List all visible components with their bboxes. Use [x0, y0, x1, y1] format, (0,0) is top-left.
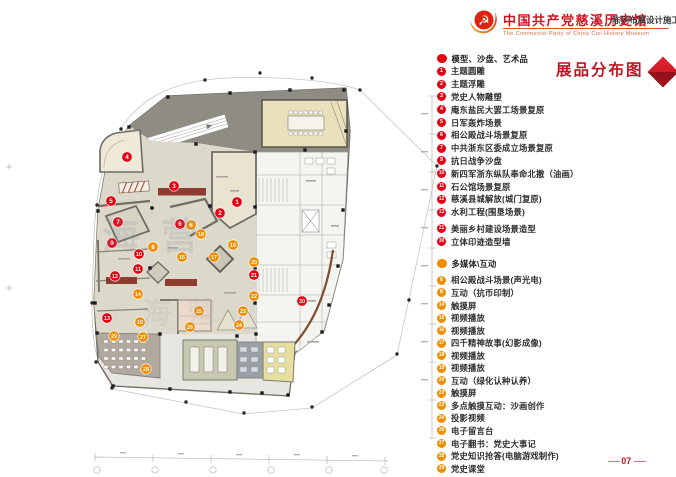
legend-item-label: 视频播放 — [451, 350, 485, 362]
legend-item-27: 27电子翻书：党史大事记 — [437, 437, 669, 450]
legend-item-17: 17四千精神故事(幻影成像) — [437, 337, 669, 350]
svg-text:10: 10 — [136, 252, 142, 258]
legend-item-number: 22 — [437, 389, 446, 398]
svg-text:7: 7 — [116, 219, 120, 226]
legend-item-number: 4 — [437, 105, 446, 114]
legend-item-3: 3党史人物雕塑 — [437, 91, 669, 104]
legend-item-number: 27 — [437, 439, 446, 448]
legend-item-label: 相公殿战斗场景复原 — [451, 129, 527, 141]
plan-marker-4-red: 4 — [122, 152, 132, 162]
legend-item-number: 20 — [437, 376, 446, 385]
legend-item-number: 15 — [437, 314, 446, 323]
svg-text:2: 2 — [218, 210, 222, 217]
legend-item-number: 21 — [437, 224, 446, 233]
legend-section-label: 多媒体\互动 — [452, 258, 497, 270]
legend-item-21: 21美丽乡村建设场景造型 — [437, 223, 669, 236]
sheet-page: 1234566789101112131415161718192021222324… — [0, 0, 676, 477]
svg-text:8: 8 — [151, 244, 155, 251]
legend-item-label: 党史课堂 — [451, 463, 485, 475]
legend-item-number: 10 — [437, 169, 446, 178]
svg-text:3: 3 — [172, 183, 176, 190]
plan-marker-25-orange: 25 — [194, 306, 204, 316]
legend-item-label: 电子翻书：党史大事记 — [451, 438, 536, 450]
plan-marker-1-red: 1 — [232, 197, 242, 207]
svg-text:24: 24 — [236, 323, 242, 329]
legend-item-number: 12 — [437, 195, 446, 204]
plan-marker-6-orange: 6 — [186, 220, 196, 230]
svg-text:27: 27 — [140, 335, 146, 341]
legend-item-14: 14触摸屏 — [437, 299, 669, 312]
legend-item-label: 主题圆雕 — [451, 65, 485, 77]
legend-item-number: 17 — [437, 339, 446, 348]
svg-text:29: 29 — [111, 334, 117, 340]
plan-marker-30-red: 30 — [297, 296, 307, 306]
legend-item-number: 29 — [437, 464, 446, 473]
legend-item-19: 19视频播放 — [437, 362, 669, 375]
plan-marker-3-red: 3 — [169, 181, 179, 191]
legend-item-26: 26电子留言台 — [437, 425, 669, 438]
grid-bubbles — [94, 467, 387, 473]
legend-item-label: 美丽乡村建设场景造型 — [451, 223, 536, 235]
plan-marker-2-red: 2 — [215, 208, 225, 218]
legend-item-label: 石公馆场景复原 — [451, 181, 510, 193]
legend-item-10: 10新四军浙东纵队奉命北撤（油画） — [437, 167, 669, 180]
plan-marker-24-orange: 24 — [234, 320, 244, 330]
legend-item-label: 四千精神故事(幻影成像) — [451, 337, 542, 349]
legend-item-number: 14 — [437, 301, 446, 310]
legend-item-label: 庵东盐民大罢工场景复原 — [451, 104, 544, 116]
svg-text:☭: ☭ — [478, 13, 490, 28]
legend-color-dot — [437, 259, 447, 269]
plan-marker-10-red: 10 — [134, 249, 144, 259]
legend-item-number: 2 — [437, 80, 446, 89]
svg-text:26: 26 — [187, 325, 193, 331]
legend-item-12: 12慈溪县城解放(城门复原) — [437, 193, 669, 206]
conference-room — [262, 100, 347, 147]
plan-marker-9-red: 9 — [107, 238, 117, 248]
legend-item-16: 16视频播放 — [437, 324, 669, 337]
scheme-subtitle: 陈列布展设计施工方案 — [612, 14, 676, 26]
plan-marker-11-red: 11 — [133, 264, 143, 274]
legend-item-13: 13水利工程(围垦场景) — [437, 206, 669, 219]
svg-text:5: 5 — [109, 198, 113, 205]
legend-item-number: 11 — [437, 182, 446, 191]
legend-item-number: 3 — [437, 92, 446, 101]
page-number: ── 07 ── — [608, 456, 645, 466]
plan-marker-29-orange: 29 — [109, 331, 119, 341]
svg-text:22: 22 — [251, 294, 257, 300]
legend-item-number: 6 — [437, 131, 446, 140]
legend-item-4: 4庵东盐民大罢工场景复原 — [437, 103, 669, 116]
legend-item-number: 18 — [437, 351, 446, 360]
legend-item-6: 6相公殿战斗场景复原 — [437, 129, 669, 142]
svg-text:12: 12 — [112, 274, 118, 280]
legend-item-30: 30立体印迹造型墙 — [437, 235, 669, 248]
plan-marker-27-orange: 27 — [138, 332, 148, 342]
plan-marker-23-orange: 23 — [238, 306, 248, 316]
legend-item-22: 22触摸屏 — [437, 387, 669, 400]
svg-text:4: 4 — [125, 154, 129, 161]
legend-item-label: 中共浙东区委成立场景复原 — [451, 142, 553, 154]
legend-item-9: 9抗日战争沙盘 — [437, 155, 669, 168]
svg-text:28: 28 — [143, 367, 149, 373]
round-room — [100, 130, 143, 172]
page-number-dash: ── — [634, 456, 645, 466]
svg-text:17: 17 — [211, 255, 217, 261]
elevator — [302, 210, 319, 232]
legend-item-label: 多点触摸互动：沙画创作 — [451, 400, 544, 412]
legend-item-number: 5 — [437, 118, 446, 127]
legend-item-number: 16 — [437, 326, 446, 335]
plan-marker-18-orange: 18 — [196, 229, 206, 239]
plan-marker-13-red: 13 — [102, 313, 112, 323]
legend-item-20: 20互动（绿化认种认养） — [437, 375, 669, 388]
plan-marker-22-orange: 22 — [249, 291, 259, 301]
svg-text:16: 16 — [179, 255, 185, 261]
legend-item-number: 24 — [437, 414, 446, 423]
legend-section-header: 模型、沙盘、艺术品 — [437, 52, 669, 65]
svg-text:25: 25 — [196, 309, 202, 315]
plan-marker-20-orange: 20 — [249, 257, 259, 267]
legend-section-header: 多媒体\互动 — [437, 257, 669, 270]
legend-item-number: 13 — [437, 208, 446, 217]
legend-item-number: 7 — [437, 144, 446, 153]
legend-item-label: 互动（绿化认种认养） — [451, 375, 536, 387]
svg-text:18: 18 — [198, 232, 204, 238]
legend-color-dot — [437, 54, 447, 64]
plan-marker-28-orange: 28 — [141, 364, 151, 374]
svg-text:30: 30 — [299, 299, 305, 305]
legend-item-label: 投影视频 — [451, 412, 485, 424]
legend-item-number: 6 — [437, 276, 446, 285]
legend-item-24: 24投影视频 — [437, 412, 669, 425]
plan-marker-6-red: 6 — [175, 219, 185, 229]
legend-item-label: 电子留言台 — [451, 425, 494, 437]
svg-text:9: 9 — [110, 240, 114, 247]
page-number-dash: ── — [608, 456, 619, 466]
svg-text:15: 15 — [137, 320, 143, 326]
legend-item-11: 11石公馆场景复原 — [437, 180, 669, 193]
legend-item-label: 党史人物雕塑 — [451, 91, 502, 103]
party-emblem-icon: ☭ — [468, 6, 500, 38]
legend-item-6: 6相公殿战斗场景(声光电) — [437, 274, 669, 287]
page-number-value: 07 — [621, 456, 631, 466]
plan-marker-8-orange: 8 — [148, 242, 158, 252]
svg-text:19: 19 — [230, 243, 236, 249]
svg-text:23: 23 — [240, 309, 246, 315]
legend-item-7: 7中共浙东区委成立场景复原 — [437, 142, 669, 155]
legend-item-18: 18视频播放 — [437, 349, 669, 362]
legend-item-number: 26 — [437, 426, 446, 435]
legend-item-15: 15视频播放 — [437, 312, 669, 325]
legend-section-label: 模型、沙盘、艺术品 — [452, 53, 528, 65]
plan-marker-5-red: 5 — [106, 196, 116, 206]
legend-item-label: 主题浮雕 — [451, 78, 485, 90]
legend-item-5: 5日军轰炸场景 — [437, 116, 669, 129]
museum-title-en: The Communist Party of China Cixi Histor… — [503, 31, 649, 37]
svg-text:20: 20 — [251, 260, 257, 266]
legend-item-number: 1 — [437, 67, 446, 76]
svg-text:21: 21 — [251, 273, 257, 279]
legend-item-label: 触摸屏 — [451, 300, 477, 312]
legend-item-number: 23 — [437, 401, 446, 410]
plan-marker-15-orange: 15 — [135, 317, 145, 327]
legend-item-label: 新四军浙东纵队奉命北撤（油画） — [451, 168, 578, 180]
svg-text:14: 14 — [135, 292, 141, 298]
svg-text:6: 6 — [178, 221, 182, 228]
plan-marker-14-orange: 14 — [133, 289, 143, 299]
legend: 模型、沙盘、艺术品1主题圆雕2主题浮雕3党史人物雕塑4庵东盐民大罢工场景复原5日… — [437, 52, 669, 475]
legend-item-label: 慈溪县城解放(城门复原) — [451, 193, 542, 205]
legend-item-1: 1主题圆雕 — [437, 65, 669, 78]
svg-text:11: 11 — [135, 267, 141, 273]
legend-item-23: 23多点触摸互动：沙画创作 — [437, 400, 669, 413]
svg-text:6: 6 — [189, 222, 193, 229]
header-rule — [503, 28, 669, 29]
plan-marker-12-red: 12 — [110, 271, 120, 281]
svg-text:13: 13 — [104, 316, 110, 322]
legend-item-number: 28 — [437, 452, 446, 461]
legend-item-number: 8 — [437, 288, 446, 297]
plan-marker-17-orange: 17 — [209, 252, 219, 262]
svg-text:1: 1 — [235, 199, 239, 206]
legend-item-label: 触摸屏 — [451, 387, 477, 399]
legend-item-number: 19 — [437, 364, 446, 373]
legend-item-label: 互动（抗币印制） — [451, 287, 519, 299]
legend-item-label: 视频播放 — [451, 325, 485, 337]
legend-item-label: 水利工程(围垦场景) — [451, 206, 525, 218]
legend-item-label: 日军轰炸场景 — [451, 117, 502, 129]
plan-marker-26-orange: 26 — [185, 322, 195, 332]
floor-plan: 1234566789101112131415161718192021222324… — [0, 0, 450, 477]
legend-item-number: 9 — [437, 156, 446, 165]
legend-item-number: 30 — [437, 237, 446, 246]
plan-marker-19-orange: 19 — [228, 240, 238, 250]
plan-marker-16-orange: 16 — [177, 252, 187, 262]
plan-marker-21-red: 21 — [249, 270, 259, 280]
header: ☭ 中国共产党慈溪历史馆 陈列布展设计施工方案 The Communist Pa… — [0, 0, 676, 46]
service-block — [256, 152, 348, 351]
legend-item-label: 立体印迹造型墙 — [451, 236, 510, 248]
legend-item-label: 视频播放 — [451, 362, 485, 374]
legend-item-8: 8互动（抗币印制） — [437, 287, 669, 300]
legend-item-2: 2主题浮雕 — [437, 78, 669, 91]
legend-item-label: 抗日战争沙盘 — [451, 155, 502, 167]
legend-item-label: 党史知识抢答(电脑游戏制作) — [451, 450, 559, 462]
legend-item-label: 视频播放 — [451, 312, 485, 324]
plan-marker-7-red: 7 — [113, 217, 123, 227]
legend-item-label: 相公殿战斗场景(声光电) — [451, 274, 542, 286]
